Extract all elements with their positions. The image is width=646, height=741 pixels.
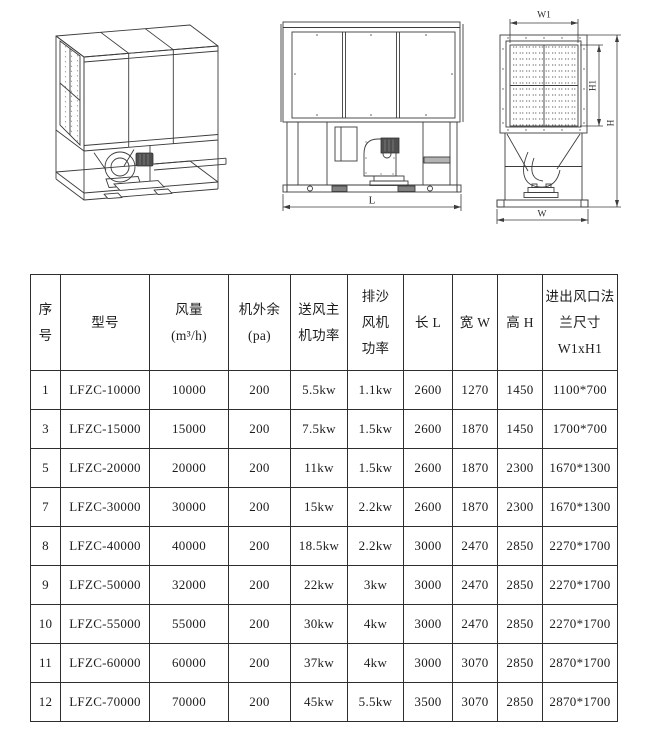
side-base-rail (497, 200, 588, 207)
table-cell: 2850 (498, 566, 543, 605)
table-cell: 2850 (498, 644, 543, 683)
table-cell: 200 (229, 683, 291, 722)
centrifugal-fan (94, 150, 164, 191)
table-cell: 55000 (150, 605, 229, 644)
front-base-rail (283, 185, 461, 192)
table-cell: 15kw (291, 488, 348, 527)
table-cell: 32000 (150, 566, 229, 605)
table-cell: 1870 (453, 449, 498, 488)
length-dimension: L (283, 194, 461, 211)
table-cell: 200 (229, 566, 291, 605)
table-cell: 5.5kw (291, 371, 348, 410)
table-cell: 3070 (453, 683, 498, 722)
table-cell: 2850 (498, 527, 543, 566)
table-cell: 1870 (453, 488, 498, 527)
table-cell: 2850 (498, 683, 543, 722)
header-line: (pa) (229, 323, 290, 349)
table-row: 12LFZC-700007000020045kw5.5kw35003070285… (31, 683, 618, 722)
header-line: 机外余 (229, 297, 290, 323)
header-line: 功率 (348, 336, 403, 362)
table-cell: 4kw (348, 605, 404, 644)
spec-table-body: 1LFZC-10000100002005.5kw1.1kw26001270145… (31, 371, 618, 722)
table-cell: 1.5kw (348, 410, 404, 449)
table-cell: 2270*1700 (543, 566, 618, 605)
front-view-drawing: L (278, 8, 466, 220)
front-fan-assembly (335, 127, 450, 186)
table-cell: 1.1kw (348, 371, 404, 410)
table-cell: 7.5kw (291, 410, 348, 449)
spec-table-header: 序 号 型号 风量 (m³/h) 机外余 (pa) 送风主 机功率 排沙 风机 … (31, 275, 618, 371)
table-cell: LFZC-20000 (61, 449, 150, 488)
header-line: 序 (31, 297, 60, 323)
table-cell: 20000 (150, 449, 229, 488)
table-cell: 10000 (150, 371, 229, 410)
table-cell: 10 (31, 605, 61, 644)
table-cell: 2870*1700 (543, 683, 618, 722)
header-line: 机功率 (291, 323, 347, 349)
header-line: W1xH1 (543, 336, 617, 362)
table-cell: 5.5kw (348, 683, 404, 722)
table-cell: 9 (31, 566, 61, 605)
table-cell: 200 (229, 371, 291, 410)
table-cell: 200 (229, 449, 291, 488)
table-cell: 4kw (348, 644, 404, 683)
table-cell: 3000 (404, 644, 453, 683)
header-line: 号 (31, 323, 60, 349)
table-cell: 2.2kw (348, 488, 404, 527)
header-line: 型号 (61, 310, 149, 336)
side-flange-panel (500, 35, 587, 133)
table-cell: LFZC-55000 (61, 605, 150, 644)
table-cell: 3kw (348, 566, 404, 605)
table-cell: 15000 (150, 410, 229, 449)
table-cell: 30000 (150, 488, 229, 527)
table-cell: 3000 (404, 605, 453, 644)
table-cell: 3 (31, 410, 61, 449)
w-dimension: W (497, 209, 588, 224)
header-cell-model: 型号 (61, 275, 150, 371)
table-cell: 2.2kw (348, 527, 404, 566)
table-cell: 1870 (453, 410, 498, 449)
table-cell: 3000 (404, 566, 453, 605)
table-cell: 70000 (150, 683, 229, 722)
header-line: 兰尺寸 (543, 310, 617, 336)
table-cell: LFZC-40000 (61, 527, 150, 566)
table-cell: 2600 (404, 371, 453, 410)
table-row: 10LFZC-550005500020030kw4kw3000247028502… (31, 605, 618, 644)
table-row: 8LFZC-400004000020018.5kw2.2kw3000247028… (31, 527, 618, 566)
table-cell: LFZC-30000 (61, 488, 150, 527)
table-row: 1LFZC-10000100002005.5kw1.1kw26001270145… (31, 371, 618, 410)
table-cell: 200 (229, 488, 291, 527)
table-cell: 60000 (150, 644, 229, 683)
table-cell: 2300 (498, 449, 543, 488)
header-line: 排沙 (348, 284, 403, 310)
table-cell: 1670*1300 (543, 488, 618, 527)
table-cell: 200 (229, 605, 291, 644)
side-view-drawing: W1 (486, 3, 638, 227)
table-cell: 2300 (498, 488, 543, 527)
header-cell-index: 序 号 (31, 275, 61, 371)
table-cell: LFZC-50000 (61, 566, 150, 605)
table-cell: 2850 (498, 605, 543, 644)
header-line: 风量 (150, 297, 228, 323)
table-cell: 2600 (404, 410, 453, 449)
dim-label-h1: H1 (588, 80, 598, 91)
header-line: 进出风口法 (543, 284, 617, 310)
table-cell: 3500 (404, 683, 453, 722)
table-cell: 1700*700 (543, 410, 618, 449)
table-cell: 5 (31, 449, 61, 488)
dim-label-w: W (538, 210, 547, 220)
table-cell: 1100*700 (543, 371, 618, 410)
header-line: 高 H (498, 310, 542, 336)
table-row: 9LFZC-500003200020022kw3kw30002470285022… (31, 566, 618, 605)
header-line: 送风主 (291, 297, 347, 323)
table-row: 3LFZC-15000150002007.5kw1.5kw26001870145… (31, 410, 618, 449)
header-line: 宽 W (453, 310, 497, 336)
table-cell: 2600 (404, 449, 453, 488)
dim-label-h: H (606, 119, 616, 126)
table-cell: 3070 (453, 644, 498, 683)
header-cell-static-pressure: 机外余 (pa) (229, 275, 291, 371)
table-cell: 200 (229, 644, 291, 683)
dim-label-w1: W1 (537, 11, 551, 21)
table-cell: LFZC-70000 (61, 683, 150, 722)
table-cell: 1670*1300 (543, 449, 618, 488)
header-cell-width: 宽 W (453, 275, 498, 371)
table-cell: 11 (31, 644, 61, 683)
table-row: 5LFZC-200002000020011kw1.5kw260018702300… (31, 449, 618, 488)
header-cell-length: 长 L (404, 275, 453, 371)
table-cell: 45kw (291, 683, 348, 722)
table-cell: 1 (31, 371, 61, 410)
table-cell: 2470 (453, 527, 498, 566)
fan-motor (136, 153, 153, 166)
table-cell: 1450 (498, 410, 543, 449)
table-cell: 2270*1700 (543, 527, 618, 566)
table-cell: LFZC-10000 (61, 371, 150, 410)
header-cell-supply-fan-power: 送风主 机功率 (291, 275, 348, 371)
header-cell-sand-fan-power: 排沙 风机 功率 (348, 275, 404, 371)
h-dimension: H (587, 35, 621, 207)
table-cell: 7 (31, 488, 61, 527)
table-cell: 18.5kw (291, 527, 348, 566)
h1-dimension: H1 (580, 45, 603, 126)
table-cell: LFZC-15000 (61, 410, 150, 449)
table-cell: 1270 (453, 371, 498, 410)
table-cell: 2870*1700 (543, 644, 618, 683)
header-cell-flange-size: 进出风口法 兰尺寸 W1xH1 (543, 275, 618, 371)
table-cell: 3000 (404, 527, 453, 566)
table-cell: 2270*1700 (543, 605, 618, 644)
table-cell: 30kw (291, 605, 348, 644)
table-cell: 37kw (291, 644, 348, 683)
table-cell: 2470 (453, 605, 498, 644)
table-cell: LFZC-60000 (61, 644, 150, 683)
side-hopper-fan (505, 133, 582, 200)
table-cell: 11kw (291, 449, 348, 488)
table-cell: 2600 (404, 488, 453, 527)
table-cell: 200 (229, 527, 291, 566)
header-line: 风机 (348, 310, 403, 336)
header-line: 长 L (404, 310, 452, 336)
table-cell: 8 (31, 527, 61, 566)
perforated-inlet-panel (60, 41, 80, 145)
table-cell: 2470 (453, 566, 498, 605)
dim-label-length: L (369, 195, 376, 207)
header-cell-height: 高 H (498, 275, 543, 371)
table-cell: 1450 (498, 371, 543, 410)
table-cell: 40000 (150, 527, 229, 566)
table-cell: 1.5kw (348, 449, 404, 488)
spec-table: 序 号 型号 风量 (m³/h) 机外余 (pa) 送风主 机功率 排沙 风机 … (30, 274, 618, 722)
header-row: 序 号 型号 风量 (m³/h) 机外余 (pa) 送风主 机功率 排沙 风机 … (31, 275, 618, 371)
table-row: 11LFZC-600006000020037kw4kw3000307028502… (31, 644, 618, 683)
table-row: 7LFZC-300003000020015kw2.2kw260018702300… (31, 488, 618, 527)
table-cell: 22kw (291, 566, 348, 605)
isometric-view-drawing (28, 12, 233, 212)
table-cell: 12 (31, 683, 61, 722)
front-fan-motor (381, 138, 399, 153)
header-cell-airflow: 风量 (m³/h) (150, 275, 229, 371)
table-cell: 200 (229, 410, 291, 449)
header-line: (m³/h) (150, 323, 228, 349)
